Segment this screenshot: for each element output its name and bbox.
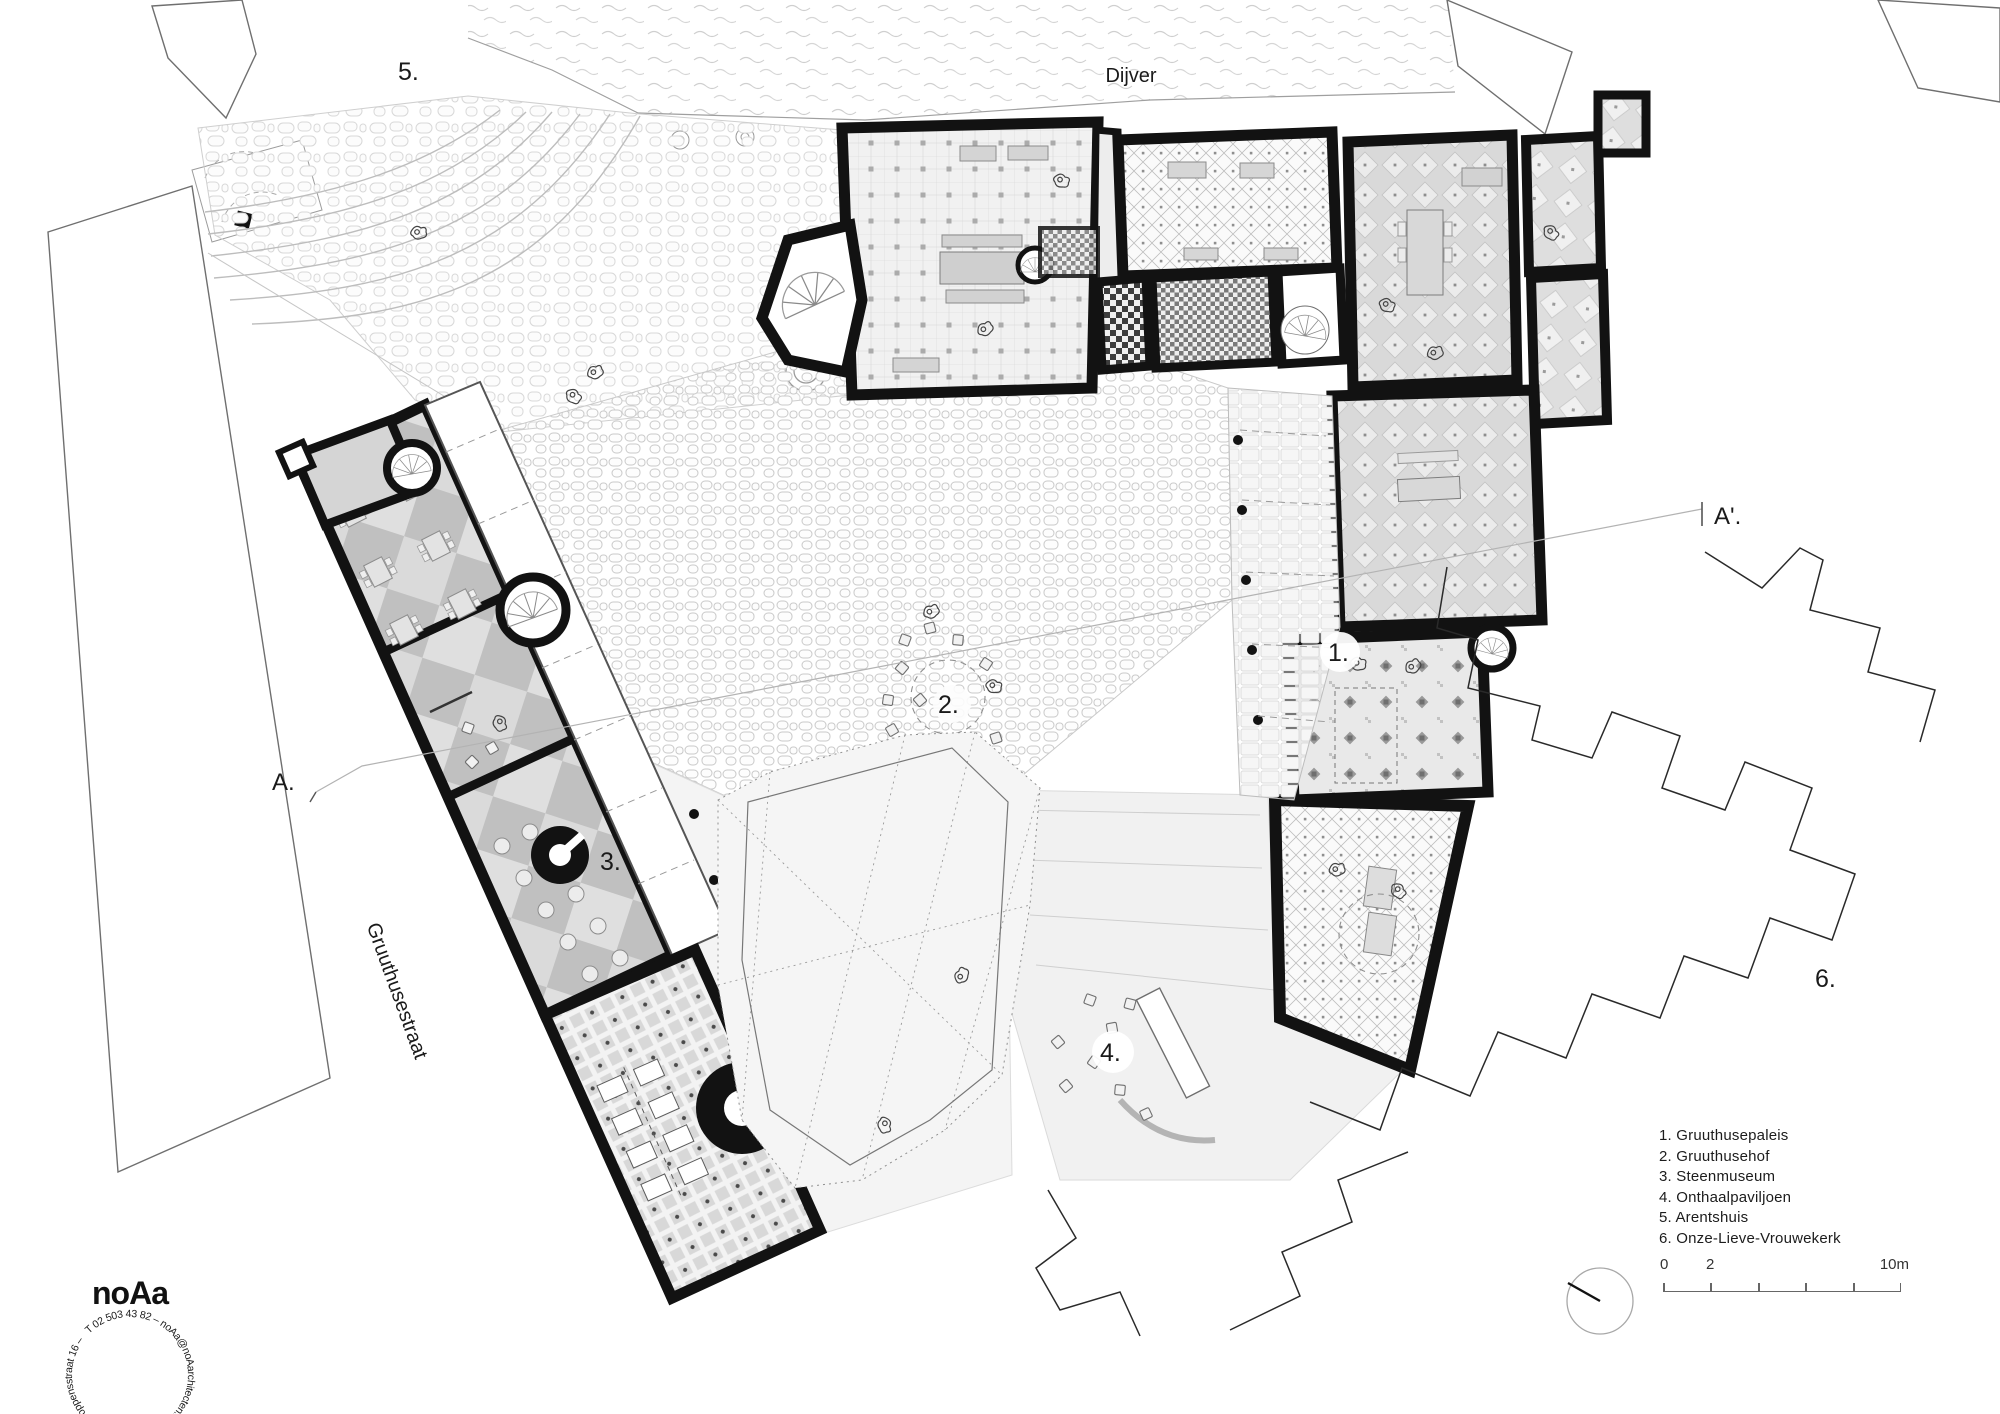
legend: 1. Gruuthusepaleis 2. Gruuthusehof 3. St… — [1659, 1126, 1841, 1249]
marker-2: 2. — [938, 691, 959, 719]
street-label-dijver: Dijver — [1105, 65, 1156, 87]
stamp-logo: noAa — [92, 1275, 169, 1311]
svg-text:T 02 503 43 82 – noAa@noAarchi: T 02 503 43 82 – noAa@noAarchitecten.net… — [63, 1308, 197, 1414]
marker-5: 5. — [398, 58, 419, 86]
stamp-ring-text: T 02 503 43 82 – noAa@noAarchitecten.net… — [63, 1308, 197, 1414]
room-diamond-a — [1332, 390, 1542, 627]
legend-item-5: 5. Arentshuis — [1659, 1208, 1841, 1229]
legend-item-6: 6. Onze-Lieve-Vrouwekerk — [1659, 1229, 1841, 1250]
noaa-stamp: T 02 503 43 82 – noAa@noAarchitecten.net… — [63, 1275, 197, 1414]
legend-item-1: 1. Gruuthusepaleis — [1659, 1126, 1841, 1147]
legend-item-2: 2. Gruuthusehof — [1659, 1147, 1841, 1168]
room-checker-fine — [1152, 272, 1276, 368]
hall-fine-diamond — [1118, 132, 1337, 276]
north-indicator — [1567, 1268, 1633, 1334]
section-label-a-prime: A'. — [1714, 503, 1741, 530]
scale-bar-line — [1663, 1283, 1901, 1292]
marker-6: 6. — [1815, 965, 1836, 993]
scale-bar: 0 2 10m — [1663, 1256, 1903, 1296]
shop-spiral-stair — [531, 826, 589, 884]
room-ne — [1526, 136, 1601, 272]
corridor-top-tower — [500, 577, 566, 643]
room-checker-dense — [1098, 278, 1150, 370]
room-e — [1531, 274, 1607, 424]
site-plan-page: Dijver Gruuthusestraat 5. 2. 3. 4. 1. 6.… — [0, 0, 2000, 1414]
street-label-gruuthusestraat: Gruuthusestraat — [362, 920, 432, 1063]
legend-item-3: 3. Steenmuseum — [1659, 1167, 1841, 1188]
marker-3: 3. — [600, 848, 621, 876]
scale-mid: 2 — [1706, 1256, 1714, 1273]
scale-start: 0 — [1660, 1256, 1668, 1273]
legend-item-4: 4. Onthaalpaviljoen — [1659, 1188, 1841, 1209]
wing-top-tower — [387, 443, 437, 493]
marker-1: 1. — [1328, 639, 1349, 667]
scale-end: 10m — [1880, 1256, 1909, 1273]
section-label-a: A. — [272, 769, 295, 796]
marker-4: 4. — [1100, 1039, 1121, 1067]
